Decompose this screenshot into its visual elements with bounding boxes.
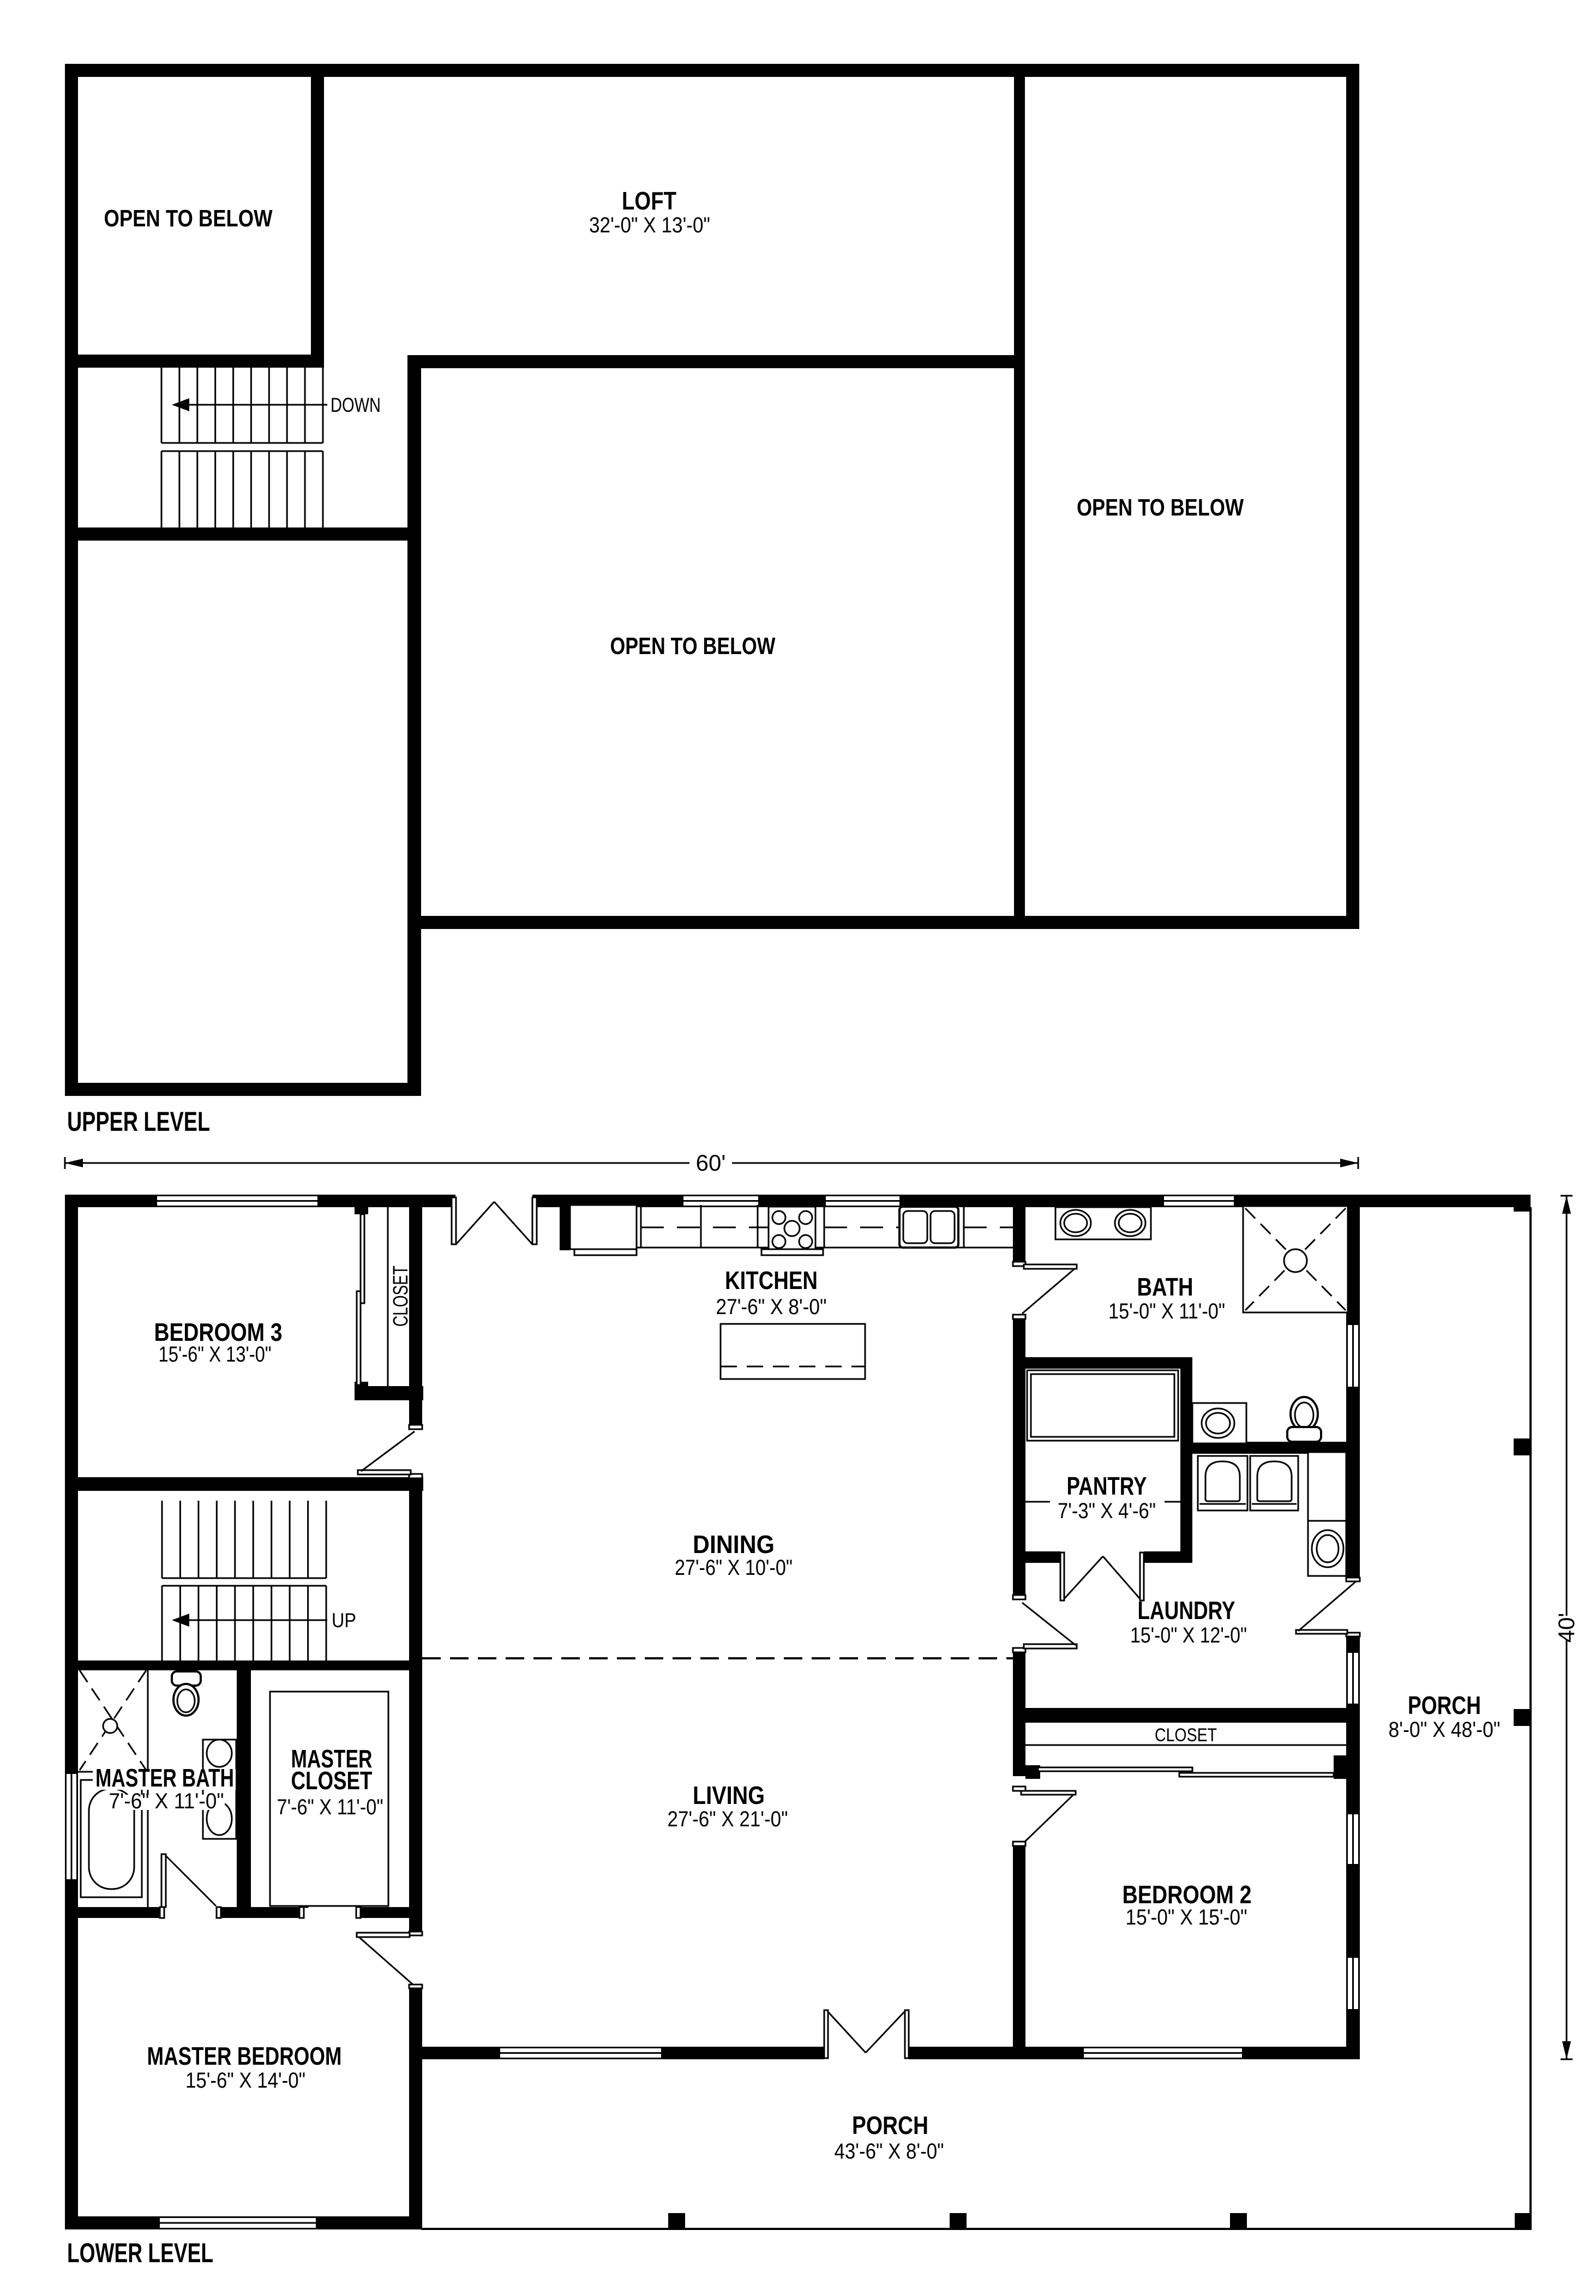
svg-text:MASTER BEDROOM: MASTER BEDROOM [147, 2042, 342, 2070]
svg-text:CLOSET: CLOSET [389, 1266, 412, 1327]
svg-text:7'-3" X 4'-6": 7'-3" X 4'-6" [1058, 1499, 1156, 1523]
svg-text:DINING: DINING [693, 1530, 775, 1558]
svg-text:UP: UP [332, 1609, 356, 1632]
svg-text:PORCH: PORCH [852, 2111, 928, 2139]
svg-text:OPEN TO BELOW: OPEN TO BELOW [104, 205, 273, 232]
svg-text:60': 60' [696, 1150, 726, 1176]
svg-text:LOWER LEVEL: LOWER LEVEL [67, 2238, 213, 2268]
svg-text:UPPER LEVEL: UPPER LEVEL [67, 1106, 210, 1137]
svg-text:27'-6" X 8'-0": 27'-6" X 8'-0" [716, 1295, 827, 1319]
svg-text:BATH: BATH [1137, 1273, 1193, 1301]
svg-text:8'-0" X 48'-0": 8'-0" X 48'-0" [1389, 1718, 1501, 1742]
svg-text:40': 40' [1553, 1613, 1579, 1643]
svg-text:CLOSET: CLOSET [1155, 1725, 1217, 1746]
svg-text:MASTER BATH: MASTER BATH [95, 1764, 234, 1792]
svg-text:7'-6" X 11'-0": 7'-6" X 11'-0" [109, 1789, 224, 1813]
svg-text:43'-6" X 8'-0": 43'-6" X 8'-0" [835, 2139, 944, 2163]
svg-text:32'-0" X 13'-0": 32'-0" X 13'-0" [589, 213, 710, 237]
svg-text:LAUNDRY: LAUNDRY [1138, 1596, 1235, 1624]
svg-text:15'-0" X 12'-0": 15'-0" X 12'-0" [1130, 1623, 1247, 1647]
svg-text:15'-0" X 11'-0": 15'-0" X 11'-0" [1108, 1299, 1225, 1323]
svg-text:LOFT: LOFT [622, 187, 676, 215]
svg-text:DOWN: DOWN [331, 394, 381, 416]
svg-text:PORCH: PORCH [1408, 1691, 1481, 1719]
svg-text:LIVING: LIVING [693, 1781, 765, 1809]
svg-text:15'-0" X 15'-0": 15'-0" X 15'-0" [1126, 1905, 1247, 1929]
svg-text:7'-6" X 11'-0": 7'-6" X 11'-0" [277, 1795, 383, 1819]
svg-text:27'-6" X 10'-0": 27'-6" X 10'-0" [675, 1556, 793, 1580]
svg-text:PANTRY: PANTRY [1067, 1472, 1147, 1500]
svg-text:BEDROOM 2: BEDROOM 2 [1123, 1880, 1252, 1909]
svg-text:CLOSET: CLOSET [291, 1766, 373, 1795]
svg-text:KITCHEN: KITCHEN [725, 1266, 818, 1294]
svg-text:15'-6" X 13'-0": 15'-6" X 13'-0" [159, 1342, 272, 1366]
svg-text:15'-6" X 14'-0": 15'-6" X 14'-0" [185, 2069, 305, 2093]
svg-text:27'-6" X 21'-0": 27'-6" X 21'-0" [668, 1807, 788, 1831]
svg-text:OPEN TO BELOW: OPEN TO BELOW [1077, 494, 1244, 521]
svg-text:OPEN TO BELOW: OPEN TO BELOW [610, 633, 776, 660]
